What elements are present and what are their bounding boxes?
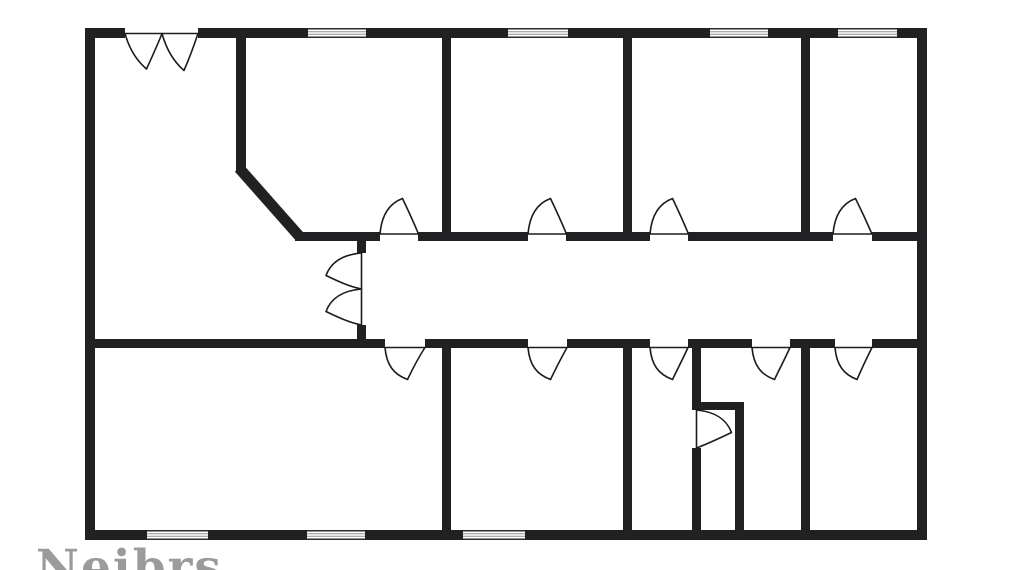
door-room-bottom-4: [752, 348, 790, 380]
corridor-end-stub-top: [357, 241, 366, 253]
wall-diagonal: [239, 168, 300, 237]
wall-room-divider-top: [801, 38, 810, 241]
corridor-wall-bottom: [688, 339, 752, 348]
wall-top-left-room: [236, 38, 246, 172]
corridor-end-stub-bottom: [357, 325, 366, 339]
entry-door-right-leaf: [162, 34, 198, 71]
watermark: Neibrs: [36, 544, 223, 570]
window-bottom-1: [147, 530, 208, 540]
walls-layer: [85, 28, 927, 540]
outer-wall-bottom: [85, 530, 147, 540]
outer-wall-right: [917, 28, 927, 540]
window-top-3: [710, 28, 768, 38]
outer-wall-top: [568, 28, 710, 38]
outer-wall-top: [366, 28, 508, 38]
floor-plan-svg: [0, 0, 1011, 570]
outer-wall-bottom: [365, 530, 463, 540]
door-room-bottom-1: [385, 348, 425, 380]
corridor-wall-bottom: [85, 339, 385, 348]
window-top-2: [508, 28, 568, 38]
door-room-top-1: [380, 199, 419, 235]
door-room-bottom-2: [528, 348, 567, 380]
hall-double-door-lower-leaf: [326, 289, 362, 325]
wall-room-divider-bottom: [801, 348, 810, 530]
door-room-top-2: [528, 199, 567, 235]
window-top-4: [838, 28, 897, 38]
corridor-wall-top: [872, 232, 917, 241]
outer-wall-bottom: [208, 530, 307, 540]
door-room-bottom-5: [835, 348, 872, 380]
corridor-wall-top: [295, 232, 380, 241]
closet-wall-right: [735, 402, 744, 530]
outer-wall-top: [768, 28, 838, 38]
outer-wall-bottom: [525, 530, 927, 540]
corridor-wall-bottom: [425, 339, 528, 348]
floor-plan-canvas: Neibrs: [0, 0, 1011, 570]
corridor-wall-top: [418, 232, 528, 241]
door-room-top-3: [650, 199, 689, 235]
entry-door-left-leaf: [125, 34, 162, 70]
outer-wall-top: [198, 28, 308, 38]
closet-wall-left-lower: [692, 448, 701, 530]
closet-door: [697, 410, 732, 448]
door-room-bottom-3: [650, 348, 688, 380]
wall-room-divider-bottom: [442, 348, 451, 530]
corridor-wall-bottom: [872, 339, 917, 348]
windows-layer: [147, 28, 897, 540]
outer-wall-left: [85, 28, 95, 540]
hall-double-door-upper-leaf: [326, 253, 362, 289]
door-room-top-4: [833, 199, 872, 235]
window-bottom-2: [307, 530, 365, 540]
corridor-wall-bottom: [567, 339, 650, 348]
wall-room-divider-bottom: [623, 348, 632, 530]
wall-room-divider-top: [442, 38, 451, 241]
corridor-wall-top: [688, 232, 833, 241]
window-top-1: [308, 28, 366, 38]
window-bottom-3: [463, 530, 525, 540]
closet-wall-left-upper: [692, 348, 701, 410]
corridor-wall-bottom: [790, 339, 835, 348]
corridor-wall-top: [566, 232, 650, 241]
wall-room-divider-top: [623, 38, 632, 241]
